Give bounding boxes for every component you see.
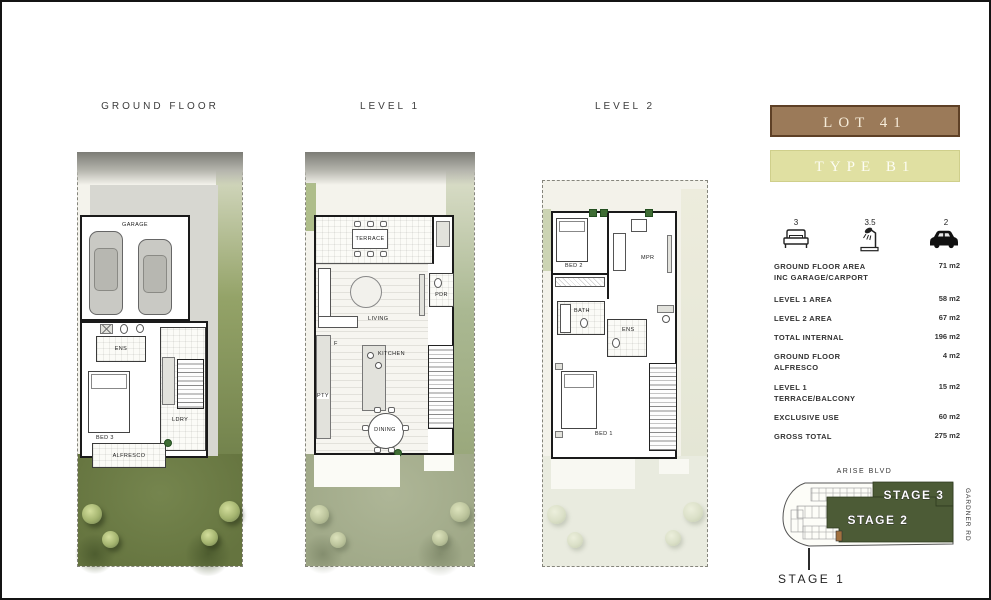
ens-label: ENS: [97, 346, 145, 352]
toilet-fixture: [434, 278, 442, 288]
footprint-notch: [551, 459, 635, 489]
chair: [354, 221, 361, 227]
car-roof: [143, 255, 166, 293]
level1-title: LEVEL 1: [305, 101, 475, 112]
garage-room: GARAGE: [80, 215, 190, 321]
lot41-highlight: [836, 531, 842, 541]
stage1-lots: [791, 510, 803, 532]
sofa: [318, 268, 331, 318]
dining-label: DINING: [368, 427, 402, 433]
plant-pot: [645, 209, 653, 217]
mpr-armchair: [631, 219, 647, 232]
chair: [367, 221, 374, 227]
store-fixture: [436, 221, 450, 247]
media-unit: [667, 235, 672, 273]
level1-plan: TERRACE LIVING PDR F PTY: [305, 152, 475, 567]
rug: [350, 276, 382, 308]
toilet-fixture: [120, 324, 128, 334]
garden-strip: [216, 165, 242, 460]
laundry-tub: [100, 324, 113, 334]
area-label-line2: ALFRESCO: [774, 362, 924, 373]
sink: [367, 352, 374, 359]
area-row-value: 15 m2: [890, 382, 960, 391]
bedside-table: [555, 431, 563, 438]
desk-chair: [662, 315, 670, 323]
area-row-value: 67 m2: [890, 313, 960, 322]
kitchen-bench: [316, 335, 331, 439]
plant-pot: [589, 209, 597, 217]
area-label-line2: INC GARAGE/CARPORT: [774, 272, 924, 283]
footprint-notch: [314, 455, 400, 487]
bedside-table: [555, 363, 563, 370]
stage3-label: STAGE 3: [884, 488, 945, 502]
bush: [82, 504, 102, 524]
garden-patch: [543, 209, 551, 271]
bed2-furniture: [556, 218, 588, 262]
sink: [375, 362, 382, 369]
bed-pillow: [559, 221, 585, 232]
area-row-value: 196 m2: [890, 332, 960, 341]
bush: [665, 530, 681, 546]
robe: [555, 277, 605, 287]
bush: [547, 505, 566, 524]
level2-rooms: BED 2 MPR BATH ENS: [551, 211, 677, 459]
bush: [310, 505, 329, 524]
mpr-sofa: [613, 233, 626, 271]
alfresco-area: ALFRESCO: [92, 443, 166, 468]
ground-lower-rooms: ENS BED 3 LDRY: [80, 321, 208, 458]
bush: [330, 532, 346, 548]
area-row-value: 275 m2: [890, 431, 960, 440]
bath-room: BATH: [557, 301, 605, 335]
chair: [388, 407, 395, 413]
car-icon: [926, 228, 962, 255]
kitchen-dining-area: F PTY KITCHEN DINING: [316, 331, 428, 453]
pale-strip: [681, 189, 707, 459]
level1-rooms: TERRACE LIVING PDR F PTY: [314, 215, 454, 455]
area-row-value: 60 m2: [890, 412, 960, 421]
chair: [402, 425, 409, 431]
area-label-line2: TERRACE/BALCONY: [774, 393, 924, 404]
ensuite-room: ENS: [96, 336, 146, 362]
stairs-ground: [177, 359, 204, 409]
basin-fixture: [136, 324, 144, 333]
ldry-label: LDRY: [172, 417, 188, 423]
pdr-label: PDR: [430, 292, 453, 298]
ens-label: ENS: [622, 327, 635, 333]
street-label-right: GARDNER RD: [964, 488, 971, 550]
area-row-value: 71 m2: [890, 261, 960, 270]
car-2: [138, 239, 172, 315]
car-1: [89, 231, 123, 315]
area-row-value: 4 m2: [890, 351, 960, 360]
mpr-label: MPR: [641, 255, 654, 261]
bed1-furniture: [561, 371, 597, 429]
bed-pillow: [564, 374, 594, 388]
cars-count: 2: [928, 218, 964, 227]
bed3-furniture: [88, 371, 130, 433]
chair: [354, 251, 361, 257]
terrace-area: TERRACE: [316, 217, 434, 264]
bush: [683, 502, 703, 522]
bed3-label: BED 3: [96, 435, 114, 441]
ensuite-room: ENS: [607, 319, 647, 357]
tv-unit: [419, 274, 425, 316]
chair: [367, 251, 374, 257]
desk: [657, 305, 674, 313]
type-banner: TYPE B1: [770, 150, 960, 182]
level2-title: LEVEL 2: [542, 101, 708, 112]
stage2-label: STAGE 2: [848, 513, 909, 527]
street-label-top: ARISE BLVD: [802, 468, 927, 475]
chair: [374, 407, 381, 413]
stairs-level1: [428, 345, 454, 429]
pty-label: PTY: [317, 393, 329, 399]
ground-floor-plan: GARAGE ENS BED 3 LDRY ALFRESCO: [77, 152, 243, 567]
alfresco-label: ALFRESCO: [93, 453, 165, 459]
level2-plan: BED 2 MPR BATH ENS: [542, 180, 708, 567]
bed-icon: [778, 228, 814, 255]
living-label: LIVING: [368, 316, 388, 322]
car-roof: [94, 248, 117, 291]
toilet-fixture: [580, 318, 588, 328]
bush: [450, 502, 470, 522]
kitchen-label: KITCHEN: [378, 351, 405, 357]
rear-yard-grass: [78, 454, 242, 566]
road-edge: [305, 152, 475, 185]
shower-icon: [852, 226, 888, 258]
terrace-label: TERRACE: [352, 236, 388, 242]
stage1-leader-line: [808, 548, 810, 570]
lot-banner: LOT 41: [770, 105, 960, 137]
bush: [567, 532, 583, 548]
wall: [553, 273, 607, 275]
sofa-chaise: [318, 316, 358, 328]
wall: [607, 213, 609, 299]
chair: [380, 221, 387, 227]
powder-room: PDR: [429, 273, 454, 307]
ground-floor-title: GROUND FLOOR: [77, 101, 243, 112]
footprint-notch: [424, 455, 454, 471]
fridge-label: F: [334, 341, 338, 347]
chair: [380, 251, 387, 257]
area-row-value: 58 m2: [890, 294, 960, 303]
stage1-label: STAGE 1: [778, 572, 845, 586]
beds-count: 3: [778, 218, 814, 227]
cupboard: [162, 357, 175, 405]
site-map: STAGE 3 STAGE 2: [777, 480, 959, 550]
bed2-label: BED 2: [565, 263, 583, 269]
bush: [432, 530, 448, 546]
garage-label: GARAGE: [82, 222, 188, 228]
bush: [102, 531, 119, 548]
living-area: LIVING: [316, 264, 428, 331]
bush: [219, 501, 240, 522]
stairs-level2: [649, 363, 677, 451]
footprint-notch: [659, 459, 689, 474]
chair: [374, 447, 381, 453]
road-edge: [77, 152, 243, 185]
brochure-page: GROUND FLOOR LEVEL 1 LEVEL 2 GARAGE: [0, 0, 991, 600]
toilet-fixture: [612, 338, 620, 348]
bed-pillow: [91, 374, 127, 389]
bathtub: [560, 304, 571, 333]
bed1-label: BED 1: [595, 431, 613, 437]
bush: [201, 529, 218, 546]
plant-pot: [164, 439, 172, 447]
bath-label: BATH: [574, 308, 590, 314]
